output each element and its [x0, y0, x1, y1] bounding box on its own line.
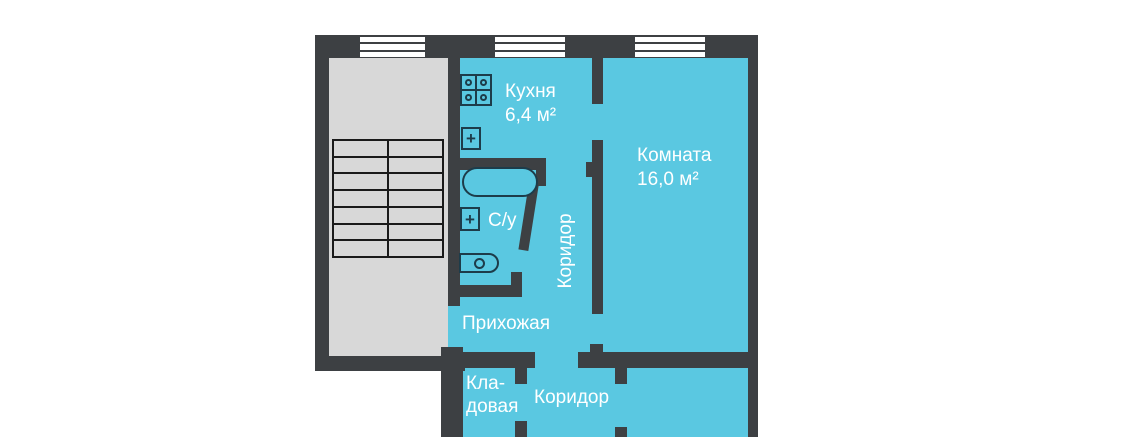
stairs-icon: [332, 139, 444, 258]
bathroom-sink-icon: [460, 207, 480, 231]
floor-plan: Кухня 6,4 м² Комната 16,0 м² С/у Коридор…: [0, 0, 1126, 437]
kitchen-name: Кухня: [505, 80, 556, 104]
kitchen-sink-icon: [461, 127, 481, 150]
wall-room-divider-top: [592, 56, 603, 104]
bathroom-label: С/у: [488, 209, 517, 233]
storage-name-line1: Кла-: [466, 372, 518, 395]
wall-room-divider-mid: [592, 140, 603, 314]
toilet-icon: [459, 253, 499, 273]
living-room-label: Комната 16,0 м²: [637, 144, 711, 192]
wall-bathroom-bottom: [457, 285, 513, 297]
kitchen-area: 6,4 м²: [505, 104, 556, 128]
stove-icon: [460, 74, 492, 106]
wall-left: [315, 35, 329, 371]
storage-label: Кла- довая: [466, 372, 518, 418]
window-icon: [635, 37, 705, 57]
hallway-label: Прихожая: [462, 312, 550, 336]
bathtub-icon: [462, 167, 538, 197]
storage-name-line2: довая: [466, 395, 518, 418]
living-room-name: Комната: [637, 144, 711, 168]
lower-corridor-label: Коридор: [534, 386, 609, 410]
window-icon: [360, 37, 425, 57]
corridor-label: Коридор: [555, 213, 577, 288]
window-icon: [495, 37, 565, 57]
kitchen-label: Кухня 6,4 м²: [505, 80, 556, 128]
room-door-hinge-bump: [586, 162, 593, 177]
corridor-door-jamb: [615, 368, 627, 384]
living-room-area: 16,0 м²: [637, 168, 711, 192]
storage-wall-stub: [515, 421, 527, 437]
corridor-wall-stub: [615, 427, 627, 437]
wall-bottom-left: [441, 352, 535, 368]
wall-bottom-right: [578, 352, 758, 368]
bathroom-door-jamb-bottom: [511, 272, 522, 297]
entry-doorway-floor: [448, 306, 460, 347]
wall-right: [748, 55, 758, 437]
